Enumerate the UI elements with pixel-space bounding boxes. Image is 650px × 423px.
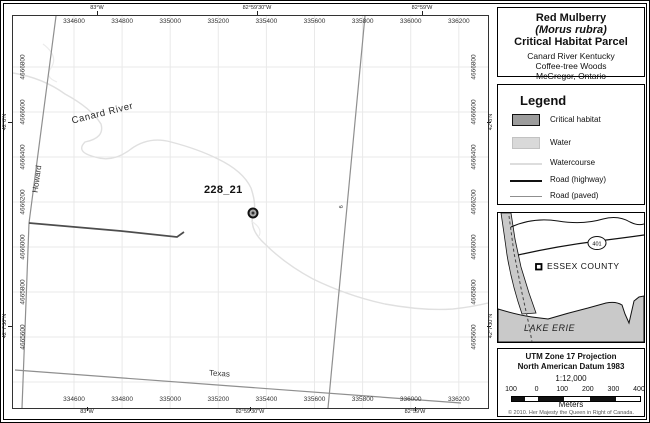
map-figure: 3346003346003348003348003350003350003352… (0, 0, 650, 423)
easting-label-top: 335600 (304, 18, 326, 25)
northing-label-right: 4666800 (470, 54, 477, 79)
map-title-line1: Red Mulberry (498, 12, 644, 24)
side-road-line (29, 223, 184, 237)
legend-item-label: Road (highway) (550, 175, 606, 184)
latitude-tick (8, 122, 12, 123)
northing-label-right: 4666200 (470, 189, 477, 214)
easting-label-bottom: 335800 (352, 396, 374, 403)
scalebar-tick-label: 100 (505, 386, 517, 393)
northing-label-left: 4666200 (19, 189, 26, 214)
legend-item: Road (highway) (498, 172, 644, 188)
legend-title: Legend (520, 93, 566, 108)
legend-swatch-line-faint (510, 163, 542, 165)
latitude-tick (487, 122, 491, 123)
road9-label: 9 (337, 205, 343, 210)
parcel-id-label: 228_21 (204, 184, 243, 196)
northing-label-right: 4665800 (470, 279, 477, 304)
canard-river-watercourse (13, 73, 488, 309)
northing-label-right: 4666600 (470, 99, 477, 124)
longitude-tick (87, 407, 88, 411)
latitude-tick (8, 326, 12, 327)
legend-swatch-line-black (510, 180, 542, 182)
legend-item: Water (498, 135, 644, 151)
parcel-marker-inner (252, 212, 255, 215)
projection-label: UTM Zone 17 Projection (498, 352, 644, 362)
easting-label-top: 336200 (448, 18, 470, 25)
legend-item: Critical habitat (498, 112, 644, 128)
easting-label-bottom: 334600 (63, 396, 85, 403)
highway-401-shield-text: 401 (592, 242, 601, 248)
texas-road-label: Texas (209, 368, 230, 378)
road9-line (328, 16, 365, 408)
scalebar-tick-label: 0 (535, 386, 539, 393)
scalebar-tick-label: 300 (608, 386, 620, 393)
longitude-tick (97, 11, 98, 15)
legend-item-label: Critical habitat (550, 115, 601, 124)
easting-label-top: 335800 (352, 18, 374, 25)
inset-map-panel: 401 ESSEX COUNTY LAKE ERIE (497, 212, 645, 343)
main-map-frame: 3346003346003348003348003350003350003352… (12, 15, 489, 409)
legend-swatch-line-gray (510, 196, 542, 197)
map-subtitle-line2: Coffee-tree Woods (498, 61, 644, 71)
scale-panel: UTM Zone 17 Projection North American Da… (497, 348, 645, 417)
legend-panel: Legend Critical habitatWaterWatercourseR… (497, 84, 645, 205)
northing-label-left: 4666600 (19, 99, 26, 124)
easting-label-bottom: 335200 (207, 396, 229, 403)
scalebar-tick-label: 100 (556, 386, 568, 393)
map-title-line2: (Morus rubra) (498, 24, 644, 36)
howard-road-line (22, 16, 56, 408)
inset-location-marker (536, 264, 542, 270)
scalebar-tick-label: 200 (582, 386, 594, 393)
easting-label-bottom: 336200 (448, 396, 470, 403)
northing-label-left: 4665800 (19, 279, 26, 304)
easting-label-top: 335200 (207, 18, 229, 25)
easting-label-top: 334600 (63, 18, 85, 25)
longitude-tick (415, 407, 416, 411)
longitude-tick (422, 11, 423, 15)
northing-label-left: 4666400 (19, 144, 26, 169)
easting-label-bottom: 335400 (256, 396, 278, 403)
lake-erie-label: LAKE ERIE (524, 323, 575, 333)
legend-item-label: Watercourse (550, 158, 595, 167)
map-subtitle-line1: Canard River Kentucky (498, 51, 644, 61)
northing-label-left: 4665600 (19, 324, 26, 349)
easting-label-top: 335000 (159, 18, 181, 25)
datum-label: North American Datum 1983 (498, 362, 644, 372)
map-subtitle-line3: McGregor, Ontario (498, 71, 644, 81)
easting-label-bottom: 334800 (111, 396, 133, 403)
easting-label-top: 336000 (400, 18, 422, 25)
legend-item-label: Road (paved) (550, 191, 598, 200)
easting-label-bottom: 336000 (400, 396, 422, 403)
title-panel: Red Mulberry (Morus rubra) Critical Habi… (497, 7, 645, 77)
legend-item: Watercourse (498, 155, 644, 171)
scalebar-unit-label: Meters (498, 400, 644, 409)
scalebar-labels: 1000100200300400 (511, 386, 641, 394)
longitude-tick (250, 407, 251, 411)
easting-label-top: 334800 (111, 18, 133, 25)
main-map-canvas (13, 16, 488, 408)
northing-label-left: 4666000 (19, 234, 26, 259)
essex-county-label: ESSEX COUNTY (547, 261, 620, 271)
northing-label-left: 4666800 (19, 54, 26, 79)
scale-ratio-label: 1:12,000 (498, 374, 644, 383)
easting-label-bottom: 335600 (304, 396, 326, 403)
legend-item-label: Water (550, 138, 571, 147)
longitude-tick (257, 11, 258, 15)
northing-label-right: 4665600 (470, 324, 477, 349)
legend-swatch-fill-light (512, 137, 540, 149)
easting-label-top: 335400 (256, 18, 278, 25)
northing-label-right: 4666000 (470, 234, 477, 259)
scalebar-tick-label: 400 (633, 386, 645, 393)
map-title-line3: Critical Habitat Parcel (498, 36, 644, 48)
legend-swatch-fill-dark (512, 114, 540, 126)
legend-item: Road (paved) (498, 188, 644, 204)
northing-label-right: 4666400 (470, 144, 477, 169)
copyright-notice: © 2010. Her Majesty the Queen in Right o… (498, 410, 644, 416)
latitude-tick (487, 326, 491, 327)
easting-label-bottom: 335000 (159, 396, 181, 403)
